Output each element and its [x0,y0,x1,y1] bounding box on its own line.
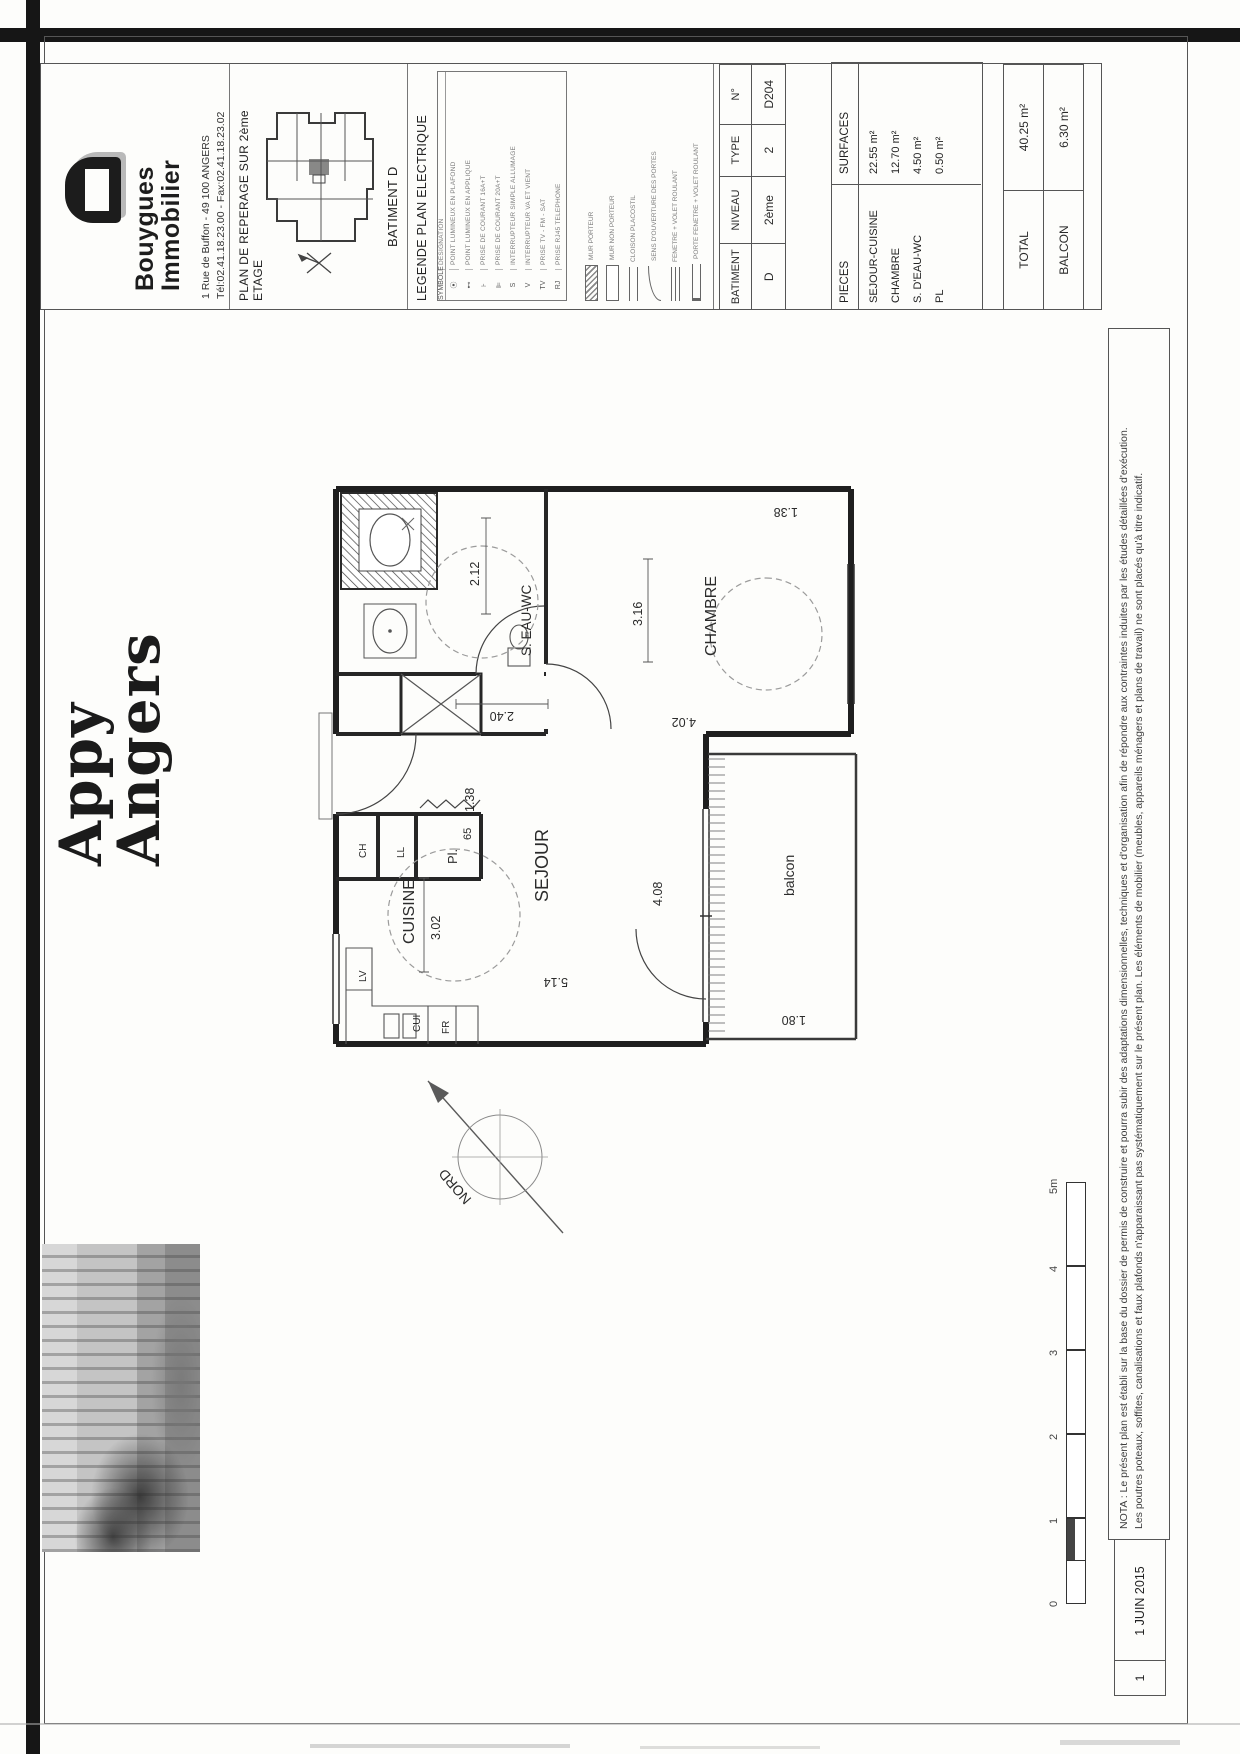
legend-title: LEGENDE PLAN ELECTRIQUE [415,66,429,301]
fixture-lv: LV [358,970,369,982]
wall-symbol-label: FENETRE + VOLET ROULANT [672,170,679,262]
wall-symbol-label: MUR NON PORTEUR [609,195,616,260]
legend-label: PRISE TV - FM - SAT [540,199,547,269]
room-surface: 0.50 m² [929,131,951,174]
legend-col-designation: DESIGNATION [438,218,445,269]
porte-fenetre-icon [692,264,701,301]
unit-value-niveau: 2ème [752,176,786,244]
dim-entry: 1.38 [463,788,477,812]
nota-line1: NOTA : Le présent plan est établi sur la… [1117,339,1132,1529]
revision-date: 1 JUIN 2015 [1114,1539,1166,1662]
legend-row: TVPRISE TV - FM - SAT [536,72,551,300]
dim-chambre-h: 4.02 [672,715,696,729]
mur-porteur-icon [585,265,598,301]
scale-tick-label: 0 [1048,1601,1060,1607]
batiment-label: BATIMENT D [385,166,400,247]
washbasin [364,604,416,658]
brand-name-line2: Immobilier [159,81,185,291]
fenetre-icon [671,267,680,301]
scale-tick-label: 1 [1048,1518,1060,1524]
areas-table: PIECES SURFACES SEJOUR-CUISINE CHAMBRE S… [831,62,983,310]
scale-tick-label: 3 [1048,1350,1060,1356]
cloison-icon [629,267,638,301]
placard-depth: 65 [462,828,474,840]
dim-bain-w: 2.12 [468,562,482,586]
wall-symbol-label: MUR PORTEUR [588,212,595,260]
legend-symbol: ⊷ [465,269,473,300]
brand-address: 1 Rue de Buffon - 49 100 ANGERS Tél:02.4… [199,69,229,299]
wall-symbol-row: MUR PORTEUR [581,69,602,301]
total-label: TOTAL [1004,191,1044,310]
legend-row: ⊦PRISE DE COURANT 16A+T [476,72,491,300]
fixture-ll: LL [396,846,407,858]
stair-core [309,159,329,175]
wall-symbol-row: MUR NON PORTEUR [602,69,623,301]
mur-non-porteur-icon [606,265,619,301]
nota-line2: Les poutres poteaux, soffites, canalisat… [1132,339,1147,1529]
legend-label: INTERRUPTEUR SIMPLE ALLUMAGE [510,146,517,269]
north-label: NORD [435,1166,474,1208]
door-swing-icon [648,266,661,301]
wall-symbol-row: PORTE FENETRE + VOLET ROULANT [686,69,707,301]
north-compass: NORD [408,1064,583,1249]
legend-label: PRISE DE COURANT 20A+T [495,175,502,269]
scale-tick-label: 4 [1048,1266,1060,1272]
unit-table: BATIMENT NIVEAU TYPE N° D 2ème 2 D204 [719,64,786,310]
address-line: 1 Rue de Buffon - 49 100 ANGERS [199,69,214,299]
areas-col-surfaces: SURFACES [839,112,851,184]
legend-row: ⊫PRISE DE COURANT 20A+T [491,72,506,300]
unit-value-type: 2 [752,124,786,176]
scan-artifact [0,1723,1240,1725]
divider [713,64,714,309]
legend-label: POINT LUMINEUX EN APPLIQUE [465,160,472,269]
legend-symbol: ⊫ [495,269,503,300]
wall-symbol-row: CLOISON PLACOSTIL [623,69,644,301]
revision-index: 1 [1114,1660,1166,1696]
dim-balcon-d: 1.80 [782,1013,806,1027]
scale-bar: 0 1 2 3 4 5m [1048,1164,1094,1604]
shower [341,493,437,589]
room-label-salle-eau: S. EAU-WC [519,584,534,656]
divider [229,64,230,309]
brand-name: Bouygues Immobilier [133,81,184,291]
legend-symbol: TV [540,269,547,300]
project-title-line1: Appy [52,632,110,866]
dim-cuisine-w: 3.02 [429,916,443,940]
unit-value-numero: D204 [752,65,786,125]
legend-symbol: RJ [555,269,562,300]
balcony [706,754,856,1039]
scale-tick-label: 2 [1048,1434,1060,1440]
wall-symbol-label: SENS D'OUVERTURE DES PORTES [651,151,658,261]
legend-symbol: S [510,269,517,300]
legend-label: INTERRUPTEUR VA ET VIENT [525,169,532,269]
room-label-cuisine: CUISINE [401,879,418,944]
legend-label: PRISE DE COURANT 16A+T [480,175,487,269]
scan-edge-left [26,0,40,1754]
areas-col-pieces: PIECES [832,184,858,309]
dim-sejour-h: 5.14 [544,975,568,989]
door-swings [336,606,706,999]
legend-row: ⊷POINT LUMINEUX EN APPLIQUE [461,72,476,300]
unit-header: TYPE [720,124,752,176]
reperage-north-cross-icon [299,253,331,273]
scale-tick-label: 5m [1048,1179,1060,1194]
unit-value-batiment: D [752,244,786,310]
dim-sejour-w: 4.08 [651,882,665,906]
legend-row: ⦿POINT LUMINEUX EN PLAFOND [446,72,461,300]
fixture-fr: FR [441,1021,452,1034]
project-title: Appy Angers [52,632,168,866]
scale-bar-rule [1066,1182,1086,1604]
reperage-mini-plan [257,94,382,279]
room-surface: 12.70 m² [885,131,907,174]
plan-sheet: Bouygues Immobilier 1 Rue de Buffon - 49… [0,0,1240,1754]
wall-symbol-label: CLOISON PLACOSTIL [630,195,637,262]
room-name: SEJOUR-CUISINE [863,185,885,303]
totals-table: TOTAL 40.25 m² BALCON 6.30 m² [1003,64,1084,310]
scan-artifact [640,1746,820,1749]
scan-artifact [1060,1740,1180,1745]
room-label-chambre: CHAMBRE [703,576,720,656]
room-surface: 4.50 m² [907,131,929,174]
scan-artifact [310,1744,570,1748]
title-block: Bouygues Immobilier 1 Rue de Buffon - 49… [40,63,1102,310]
room-label-balcon: balcon [781,855,797,896]
divider [407,64,408,309]
north-arrowhead-icon [428,1081,449,1103]
room-label-sejour: SEJOUR [532,829,552,902]
dim-chambre-w: 3.16 [631,602,645,626]
wall-symbol-row: SENS D'OUVERTURE DES PORTES [644,69,665,301]
legend-label: POINT LUMINEUX EN PLAFOND [450,162,457,269]
legend-row: VINTERRUPTEUR VA ET VIENT [521,72,536,300]
scanned-floor-plan-page: { "sheet": { "brand": { "name1": "Bouygu… [0,0,1240,1754]
room-name: S. D'EAU-WC [907,185,929,303]
dim-bain-h: 2.40 [490,709,514,723]
room-surface: 22.55 m² [863,131,885,174]
fixture-ch: CH [358,844,369,858]
room-name: PL [929,185,951,303]
legend-row: SINTERRUPTEUR SIMPLE ALLUMAGE [506,72,521,300]
turning-circles [388,546,822,981]
nota-box: NOTA : Le présent plan est établi sur la… [1108,328,1170,1540]
bouygues-logo-icon [65,157,121,223]
fixture-cui: CUI [412,1015,423,1032]
dim-chambre-r: 1.38 [774,505,798,519]
balcon-value: 6.30 m² [1044,65,1084,191]
brand-name-line1: Bouygues [133,81,159,291]
unit-header: N° [720,65,752,125]
legend-symbol: ⦿ [449,269,459,300]
phone-line: Tél:02.41.18.23.00 - Fax:02.41.18.23.02 [214,69,229,299]
wall-symbol-row: FENETRE + VOLET ROULANT [665,69,686,301]
legend-symbol: ⊦ [480,269,488,300]
legend-symbol: V [525,269,532,300]
legend-label: PRISE RJ45 TELEPHONE [555,183,562,269]
project-title-line2: Angers [110,632,168,866]
windows [333,564,854,1024]
balcon-label: BALCON [1044,191,1084,310]
room-name: CHAMBRE [885,185,907,303]
total-value: 40.25 m² [1004,65,1044,191]
legend-table: SYMBOLE DESIGNATION ⦿POINT LUMINEUX EN P… [437,71,567,301]
unit-header: NIVEAU [720,176,752,244]
room-label-placard: Pl. [445,849,460,864]
legend-row: RJPRISE RJ45 TELEPHONE [551,72,566,300]
wall-symbol-label: PORTE FENETRE + VOLET ROULANT [693,143,700,259]
entry-landing [319,713,332,819]
site-photo [42,1244,200,1552]
wall-symbols-legend: MUR PORTEUR MUR NON PORTEUR CLOISON PLAC… [581,69,707,301]
floor-plan: CUISINE SEJOUR CHAMBRE S. EAU-WC balcon … [316,472,868,1064]
unit-header: BATIMENT [720,244,752,310]
legend-col-symbole: SYMBOLE [438,269,445,300]
